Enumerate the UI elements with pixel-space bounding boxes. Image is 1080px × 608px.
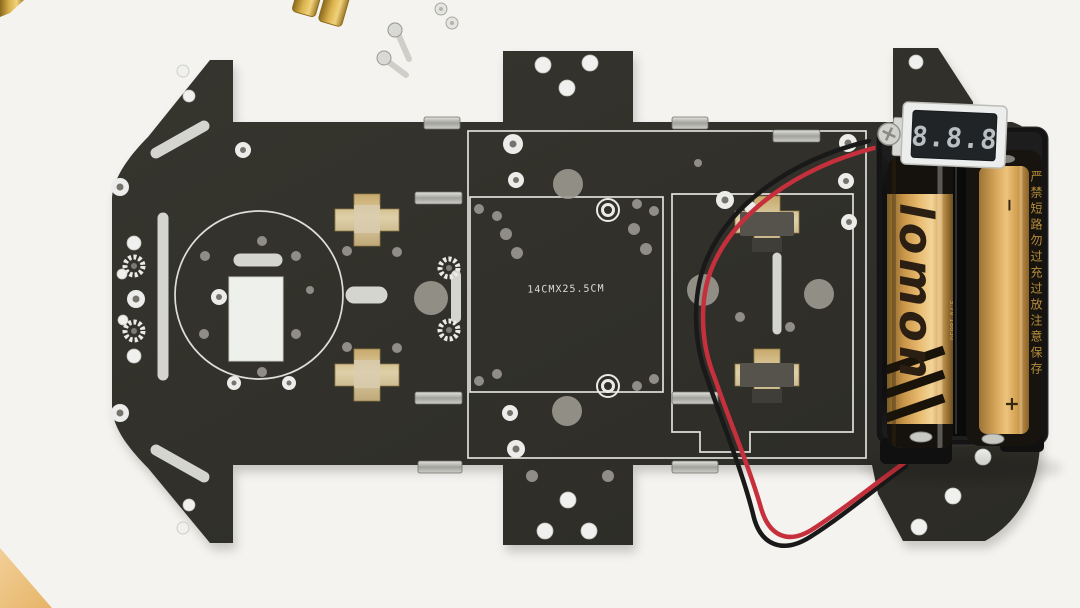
chassis-dimension-label: 14CMX25.5CM [527,283,604,295]
battery-brand-label: lomon [889,203,943,383]
battery-polarity-plus: + [1001,396,1023,412]
scene-canvas: 14CMX25.5CM lomon 3.7V 18650 [0,0,1080,608]
cross-insert [354,205,380,233]
battery-warning-label: 严禁短路勿过充过放注意保存 [1027,170,1044,442]
voltmeter-digits: 8.8.8 [910,121,1000,156]
mount-screw [878,123,900,145]
cross-insert [354,360,380,388]
square-cutout [229,277,283,361]
voltmeter: 8.8.8 [892,101,1008,168]
battery-cell-left: lomon 3.7V 18650 [886,156,956,448]
photo-robot-chassis-kit: 14CMX25.5CM lomon 3.7V 18650 [0,0,1080,608]
battery-polarity-minus: − [999,198,1019,212]
